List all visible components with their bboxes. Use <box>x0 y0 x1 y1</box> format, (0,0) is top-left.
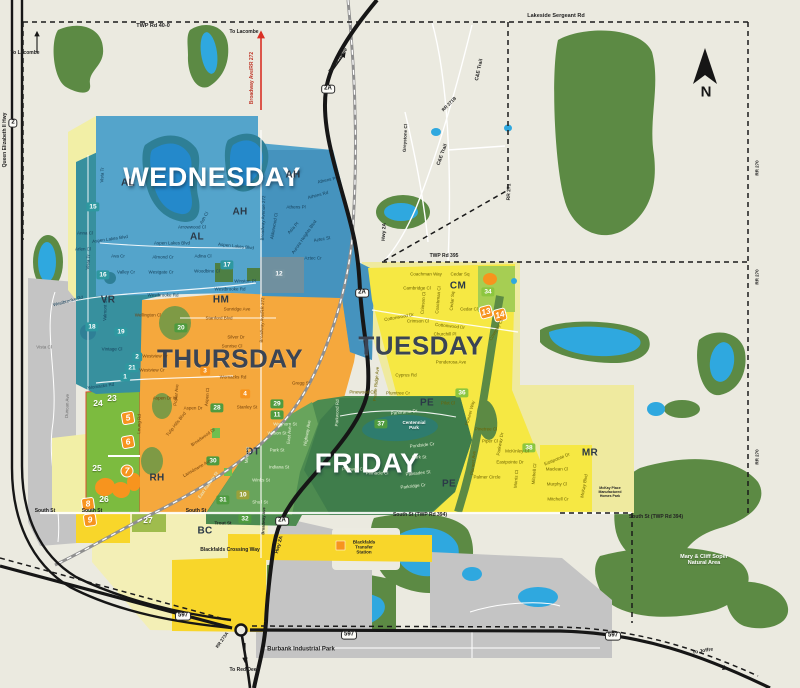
street-label: Westview Cr <box>139 367 164 372</box>
street-label: Park St <box>270 447 285 452</box>
route-marker-7: 7 <box>121 465 134 478</box>
zone-badge-26: 26 <box>99 495 108 505</box>
zone-badge-38: 38 <box>522 443 535 452</box>
street-label: Cedar Sq <box>449 291 456 310</box>
street-label: Westbrooke Rd <box>215 286 246 291</box>
street-label: Lansdowne Ave <box>182 458 212 478</box>
map-label: RR 270 <box>754 269 759 284</box>
street-label: Arlen Cl <box>75 246 91 251</box>
street-label: Palmer Circle <box>473 474 500 479</box>
map-label: Lakeside Sergeant Rd <box>527 13 584 19</box>
street-label: Tulip Hills Blvd <box>165 411 187 437</box>
street-label: Ash Cl <box>199 211 210 225</box>
street-label: Sunrise Cl <box>222 343 243 348</box>
map-label: Hwy 2A <box>382 223 389 241</box>
map-label: Blackfalds Crossing Way <box>200 548 260 554</box>
street-label: Leung Rd <box>136 414 142 434</box>
street-label: Winston Pl <box>234 278 256 283</box>
highway-shield-2: 2 <box>8 119 17 128</box>
zone-badge-23: 23 <box>107 394 116 404</box>
zone-badge-28: 28 <box>210 403 223 412</box>
route-marker-6: 6 <box>120 434 135 449</box>
zone-badge-17: 17 <box>220 260 233 269</box>
street-label: Vista Tr <box>99 167 105 182</box>
map-label: To Lacombe <box>328 47 349 74</box>
street-label: Vista Cl <box>36 344 51 349</box>
map-label: RR 270 <box>754 160 759 175</box>
street-label: Plumtree Cr <box>386 390 410 395</box>
street-label: Aspen Lakes Blvd <box>154 240 190 245</box>
map-label: Broadway Ave <box>261 507 266 534</box>
highway-shield-597: 597 <box>175 612 191 621</box>
zone-badge-34: 34 <box>481 287 494 296</box>
street-label: East Ave <box>286 426 293 444</box>
zone-badge-15: 15 <box>86 202 99 211</box>
street-label: Shull St <box>252 499 268 504</box>
street-label: Coachman Cl <box>434 286 441 314</box>
street-label: Poplar Ave <box>173 384 180 406</box>
area-code-ah: AH <box>285 169 300 180</box>
street-label: Cyprus Rd <box>395 372 416 377</box>
street-label: Broadway Ave/RR 272 <box>259 297 266 342</box>
map-label: South St <box>82 509 103 515</box>
street-label: Athens Rd <box>307 190 329 200</box>
area-code-cm: CM <box>450 280 466 291</box>
area-code-al: AL <box>190 231 204 242</box>
north-label: N <box>701 84 712 101</box>
zone-badge-36: 36 <box>455 388 468 397</box>
area-code-mr: MR <box>582 447 598 458</box>
map-label: RR 270 <box>754 449 759 464</box>
street-label: Aspen Lakes Blvd <box>218 242 254 251</box>
street-label: Cottonwood Dr <box>384 312 414 322</box>
street-label: McKay Blvd <box>579 474 588 498</box>
area-code-al: AL <box>121 177 135 188</box>
map-label: Trout St <box>215 520 232 525</box>
street-label: Parkwood Rd <box>334 399 340 426</box>
route-marker-14: 14 <box>492 307 508 323</box>
area-code-rh: RH <box>149 472 164 483</box>
street-label: Ponderosa Ave <box>436 359 466 364</box>
map-label: To Lacombe <box>10 51 39 57</box>
map-label: Centennial Park <box>402 420 425 430</box>
street-label: Valmont St <box>102 299 108 321</box>
zone-badge-19: 19 <box>114 327 127 336</box>
zone-badge-20: 20 <box>174 323 187 332</box>
zone-badge-10: 10 <box>236 490 249 499</box>
street-label: Ava Cr <box>111 253 125 258</box>
street-label: Alderwood Cl <box>269 212 279 239</box>
street-label: Wilson St <box>267 430 286 435</box>
street-label: Anna Cl <box>77 230 93 235</box>
street-label: Piper Cl <box>482 438 498 443</box>
street-label: Eastpointe Dr <box>543 452 570 467</box>
map-label: C&E Trail <box>437 144 450 167</box>
day-label-tuesday: TUESDAY <box>358 331 483 360</box>
street-label: Aspen Dr <box>184 405 203 410</box>
zone-badge-4: 4 <box>240 389 250 398</box>
map-label: TWP Rd 395 <box>430 254 459 260</box>
street-label: Stanley St <box>237 404 258 409</box>
street-label: Prairie Ridge Ave <box>372 367 380 402</box>
street-label: Cambridge Cl <box>403 285 431 290</box>
collection-day-map: WEDNESDAYTHURSDAYTUESDAYFRIDAYALAHALAHVR… <box>0 0 800 688</box>
map-label: Burbank Industrial Park <box>267 647 335 654</box>
map-label: To Lacombe <box>229 30 258 36</box>
map-label: Blackfalds Transfer Station <box>353 539 376 554</box>
map-label: McKay Place Manufactured Homes Park <box>599 487 622 499</box>
street-label: Coachman Way <box>410 271 442 276</box>
street-label: Crimson Cl <box>407 318 429 323</box>
street-label: Cedar Sq <box>450 271 469 276</box>
zone-badge-37: 37 <box>374 419 387 428</box>
zone-badge-32: 32 <box>238 514 251 523</box>
zone-badge-12: 12 <box>272 269 285 278</box>
street-label: Aztec Cr <box>304 255 321 260</box>
area-code-pe: PE <box>442 478 456 489</box>
map-label: To Joffre <box>692 647 714 656</box>
street-label: Aurora Heights Blvd <box>290 219 317 255</box>
street-label: Indiana St <box>269 464 289 469</box>
street-label: Vista Tr <box>85 254 91 270</box>
map-label: Queen Elizabeth II Hwy <box>3 113 9 168</box>
street-label: Arrowwood Cl <box>178 224 206 229</box>
area-code-bc: BC <box>197 525 212 536</box>
street-label: Woodbine Cl <box>194 268 220 273</box>
zone-badge-30: 30 <box>206 456 219 465</box>
map-label: RR 271B <box>441 96 458 113</box>
day-label-thursday: THURSDAY <box>157 344 303 373</box>
map-label: TWP Rd 40-0 <box>136 23 170 29</box>
street-label: Aspen Dr W <box>153 395 177 400</box>
street-label: Broadwood Dr <box>190 427 216 448</box>
zone-badge-25: 25 <box>92 464 101 474</box>
zone-badge-27: 27 <box>143 516 152 526</box>
zone-badge-24: 24 <box>93 399 102 409</box>
street-label: Broadway Avenue 272 <box>260 195 267 240</box>
street-label: Pondside Cr <box>409 441 434 449</box>
route-marker-5: 5 <box>120 410 135 425</box>
street-label: Crimson Cl <box>420 292 427 315</box>
map-label: RR 271 <box>507 183 513 200</box>
street-label: Mitchell Cr <box>547 496 568 501</box>
zone-badge-1: 1 <box>120 372 130 381</box>
street-label: Silver Dr <box>227 334 244 339</box>
street-label: Portway Cl <box>342 466 364 471</box>
street-label: Sunridge Ave <box>224 306 251 311</box>
street-label: Cedar Cl <box>460 306 478 311</box>
street-label: Aspen Lakes Blvd <box>92 234 128 244</box>
map-label: Broadway Ave/RR 272 <box>250 52 256 104</box>
map-label: RR 273A <box>215 631 230 649</box>
highway-shield-2A: 2A <box>321 85 335 94</box>
street-label: Cottonwood Dr <box>435 322 465 330</box>
area-code-dt: DT <box>246 446 260 457</box>
street-label: Adina Cl <box>194 253 211 258</box>
zone-badge-2: 2 <box>132 352 142 361</box>
street-label: Morris Cl <box>513 470 520 488</box>
zone-badge-16: 16 <box>96 270 109 279</box>
street-label: Minto St <box>244 447 250 464</box>
street-label: Westbrooke Rd <box>148 292 179 297</box>
street-label: Eastpointe Dr <box>496 459 523 464</box>
zone-badge-3: 3 <box>200 366 210 375</box>
labels-layer: WEDNESDAYTHURSDAYTUESDAYFRIDAYALAHALAHVR… <box>0 0 800 688</box>
street-label: Mitchell Cl <box>531 463 538 484</box>
area-code-hm: HM <box>213 294 229 305</box>
map-label: Greystone Cl <box>402 124 408 152</box>
highway-shield-2A: 2A <box>275 517 289 526</box>
route-marker-8: 8 <box>81 497 96 512</box>
street-label: Vintage Cl <box>102 346 123 351</box>
street-label: Parkridge Cr <box>400 482 426 490</box>
street-label: East Railway St <box>197 471 219 500</box>
street-label: Parkway Dr <box>496 432 505 456</box>
street-label: Highway Ave <box>302 420 311 446</box>
zone-badge-11: 11 <box>271 410 284 419</box>
street-label: Coventry Cl <box>488 319 504 342</box>
street-label: Asia Pl <box>286 221 299 235</box>
street-label: Pilot Cl <box>441 400 455 405</box>
street-label: Athens Pl <box>286 204 305 209</box>
map-label: Hwy 2A <box>275 536 285 555</box>
zone-badge-31: 31 <box>216 495 229 504</box>
zone-badge-18: 18 <box>85 322 98 331</box>
street-label: Pioneer Ave <box>469 451 476 476</box>
highway-shield-597: 597 <box>605 632 621 641</box>
street-label: McKinley Cl <box>505 448 529 453</box>
street-label: Athens Pl <box>317 176 337 185</box>
street-label: Womacks Rd <box>87 382 114 391</box>
street-label: Valley Cr <box>117 269 135 274</box>
area-code-vr: VR <box>101 294 116 305</box>
street-label: Aspen Cl <box>204 388 211 407</box>
street-label: Gregg St <box>292 380 310 385</box>
street-label: Palisades St <box>405 469 430 477</box>
street-label: Pioneer Way <box>464 400 475 426</box>
street-label: Womacks Rd <box>220 374 247 379</box>
day-label-friday: FRIDAY <box>315 447 420 478</box>
street-label: Waghorn St <box>273 421 297 426</box>
street-label: Pinetree Cl <box>475 426 497 431</box>
map-label: To Red Deer <box>229 668 258 674</box>
area-code-ah: AH <box>232 206 247 217</box>
street-label: Westgate Cr <box>149 269 174 274</box>
street-label: Stanford Blvd <box>205 315 232 320</box>
street-label: Aztec St <box>313 235 330 243</box>
street-label: Park St <box>412 454 427 459</box>
highway-shield-2A: 2A <box>355 289 369 298</box>
street-label: Churchill Pl <box>434 331 457 336</box>
street-label: Wellington Cl <box>135 312 161 317</box>
street-label: Murphy Cl <box>547 481 568 486</box>
street-label: Westview Cr <box>142 353 167 358</box>
street-label: Westbrooke Rd <box>52 295 83 308</box>
map-label: South St <box>186 509 207 515</box>
map-label: South St (TWP Rd 394) <box>393 513 447 519</box>
street-label: Winks St <box>252 477 270 482</box>
zone-badge-21: 21 <box>125 363 138 372</box>
map-label: South St <box>35 509 56 515</box>
street-label: Pinewood Cl <box>349 389 374 394</box>
street-label: Almond Cr <box>152 254 173 259</box>
street-label: Duncan Ave <box>64 394 70 418</box>
zone-badge-29: 29 <box>270 399 283 408</box>
map-label: Mary & Cliff Soper Natural Area <box>680 554 728 566</box>
street-label: Pinnacle Cl <box>366 470 389 475</box>
street-label: Maclean Cl <box>546 466 569 471</box>
route-marker-9: 9 <box>83 513 98 528</box>
street-label: Panorama Dr <box>390 408 417 416</box>
map-label: C&E Trail <box>475 59 485 82</box>
area-code-pe: PE <box>420 397 434 408</box>
map-label: South St (TWP Rd 394) <box>629 515 683 521</box>
day-label-wednesday: WEDNESDAY <box>123 162 301 192</box>
route-marker-13: 13 <box>478 304 494 320</box>
highway-shield-597: 597 <box>341 631 357 640</box>
